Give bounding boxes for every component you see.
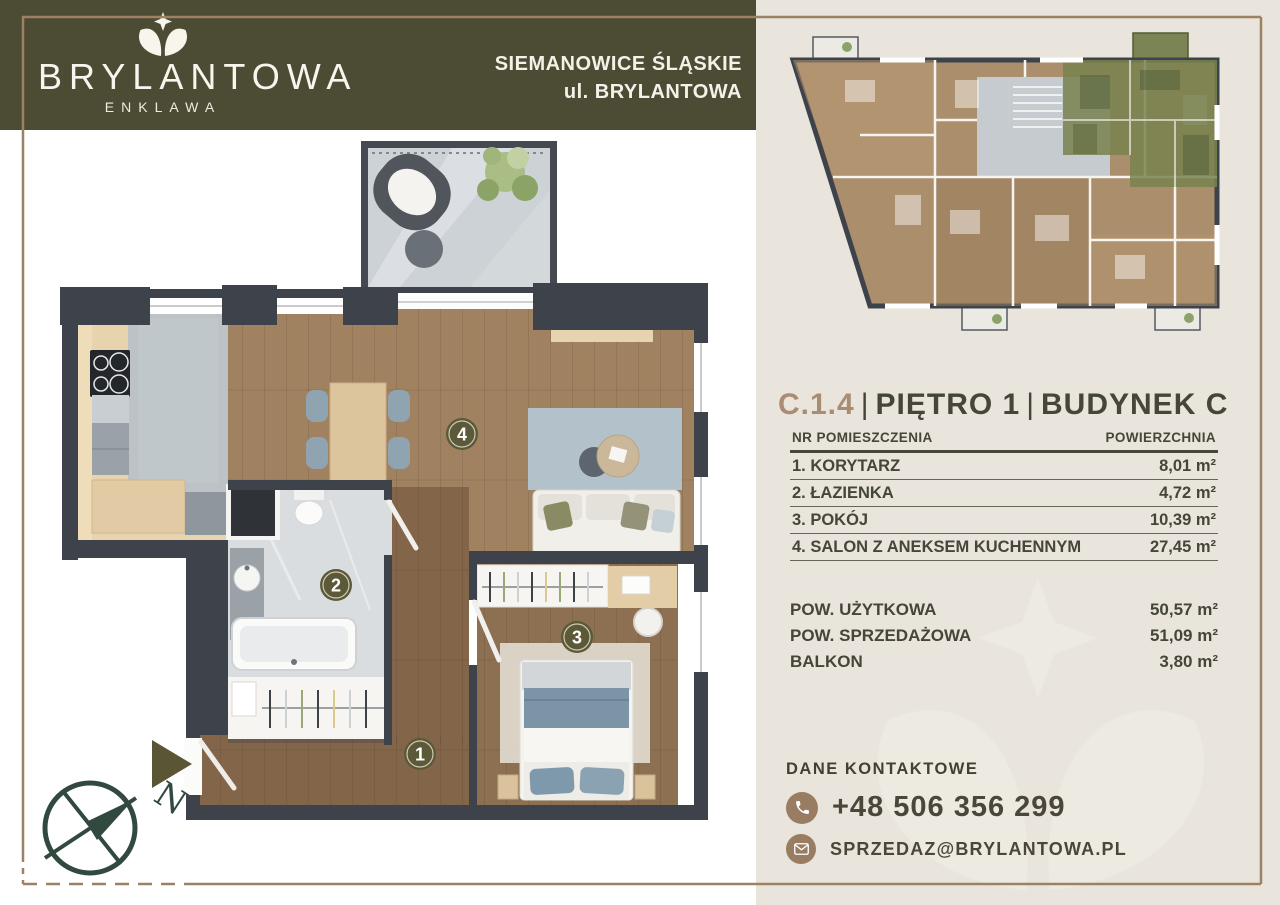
desk-chair <box>634 608 662 636</box>
brand-leaf-icon <box>131 10 195 58</box>
summary-value: 3,80 m² <box>1159 649 1218 675</box>
phone-row[interactable]: +48 506 356 299 <box>786 791 1218 824</box>
svg-text:1: 1 <box>415 745 425 765</box>
summary-row: POW. SPRZEDAŻOWA 51,09 m² <box>790 623 1218 649</box>
room-area: 27,45 m² <box>1150 538 1216 557</box>
bedroom-wardrobe <box>477 565 608 607</box>
summary-row: BALKON 3,80 m² <box>790 649 1218 675</box>
room-area: 8,01 m² <box>1159 457 1216 476</box>
svg-text:4: 4 <box>457 425 467 445</box>
rooms-header-area: POWIERZCHNIA <box>1105 430 1216 445</box>
separator: | <box>855 388 876 421</box>
mail-icon <box>786 834 816 864</box>
kitchen-cabinet <box>92 395 129 423</box>
table-row: 1. KORYTARZ 8,01 m² <box>790 453 1218 480</box>
badge-room-3: 3 <box>561 621 593 653</box>
unit-code: C.1.4 <box>778 388 855 421</box>
room-area: 10,39 m² <box>1150 511 1216 530</box>
badge-room-2: 2 <box>320 569 352 601</box>
cooktop <box>90 350 130 397</box>
washing-machine <box>231 489 275 536</box>
terrace <box>361 141 557 287</box>
laptop <box>622 576 650 594</box>
unit-building: BUDYNEK C <box>1041 388 1228 421</box>
email-row[interactable]: SPRZEDAZ@BRYLANTOWA.PL <box>786 834 1218 864</box>
room-name: 4. SALON Z ANEKSEM KUCHENNYM <box>792 538 1081 557</box>
nightstand-right <box>635 775 655 799</box>
area-summary: POW. UŻYTKOWA 50,57 m² POW. SPRZEDAŻOWA … <box>790 597 1218 675</box>
compass-icon: N <box>45 774 194 873</box>
summary-row: POW. UŻYTKOWA 50,57 m² <box>790 597 1218 623</box>
room-name: 1. KORYTARZ <box>792 457 900 476</box>
toilet-tank <box>294 490 324 500</box>
phone-number[interactable]: +48 506 356 299 <box>832 791 1066 824</box>
terrace-pouf <box>405 230 443 268</box>
summary-value: 51,09 m² <box>1150 623 1218 649</box>
rooms-table: NR POMIESZCZENIA POWIERZCHNIA 1. KORYTAR… <box>790 430 1218 561</box>
highlighted-unit-balcony <box>1133 33 1188 60</box>
rooms-table-header: NR POMIESZCZENIA POWIERZCHNIA <box>790 430 1218 453</box>
bathtub <box>232 618 356 670</box>
nightstand-left <box>498 775 518 799</box>
brand-header: BRYLANTOWA ENKLAWA SIEMANOWICE ŚLĄSKIE u… <box>0 0 756 130</box>
phone-icon <box>786 792 818 824</box>
kitchen-area <box>78 308 228 540</box>
summary-label: BALKON <box>790 649 863 675</box>
contact-heading: DANE KONTAKTOWE <box>786 760 1218 779</box>
table-row: 2. ŁAZIENKA 4,72 m² <box>790 480 1218 507</box>
bathroom <box>226 484 392 677</box>
room-name: 2. ŁAZIENKA <box>792 484 894 503</box>
brand-logo: BRYLANTOWA ENKLAWA <box>38 10 288 122</box>
corridor-wardrobe <box>228 677 392 739</box>
svg-text:2: 2 <box>331 576 341 596</box>
email-address[interactable]: SPRZEDAZ@BRYLANTOWA.PL <box>830 839 1127 860</box>
apartment-floor-plan: 1 2 3 4 N <box>0 0 756 905</box>
brand-name: BRYLANTOWA <box>38 58 288 96</box>
summary-label: POW. SPRZEDAŻOWA <box>790 623 971 649</box>
summary-label: POW. UŻYTKOWA <box>790 597 936 623</box>
badge-room-4: 4 <box>446 418 478 450</box>
separator: | <box>1020 388 1041 421</box>
dining-table <box>330 383 386 481</box>
building-overview-plan <box>785 25 1235 340</box>
bed <box>520 660 633 800</box>
contact-section: DANE KONTAKTOWE +48 506 356 299 SPRZEDAZ… <box>786 760 1218 874</box>
flyer-page: BRYLANTOWA ENKLAWA SIEMANOWICE ŚLĄSKIE u… <box>0 0 1280 905</box>
toilet <box>295 501 323 525</box>
sofa <box>533 490 680 556</box>
project-location: SIEMANOWICE ŚLĄSKIE ul. BRYLANTOWA <box>495 50 742 106</box>
unit-title: C.1.4|PIĘTRO 1|BUDYNEK C <box>778 388 1230 422</box>
summary-value: 50,57 m² <box>1150 597 1218 623</box>
location-street: ul. BRYLANTOWA <box>495 78 742 106</box>
table-row: 3. POKÓJ 10,39 m² <box>790 507 1218 534</box>
room-name: 3. POKÓJ <box>792 511 868 530</box>
svg-text:3: 3 <box>572 628 582 648</box>
rooms-header-name: NR POMIESZCZENIA <box>792 430 933 445</box>
kitchen-island <box>92 480 185 533</box>
unit-floor: PIĘTRO 1 <box>876 388 1021 421</box>
room-area: 4,72 m² <box>1159 484 1216 503</box>
badge-room-1: 1 <box>404 738 436 770</box>
brand-subtitle: ENKLAWA <box>38 99 288 115</box>
kitchen-island-cabinet <box>185 492 228 535</box>
table-row: 4. SALON Z ANEKSEM KUCHENNYM 27,45 m² <box>790 534 1218 561</box>
location-city: SIEMANOWICE ŚLĄSKIE <box>495 50 742 78</box>
